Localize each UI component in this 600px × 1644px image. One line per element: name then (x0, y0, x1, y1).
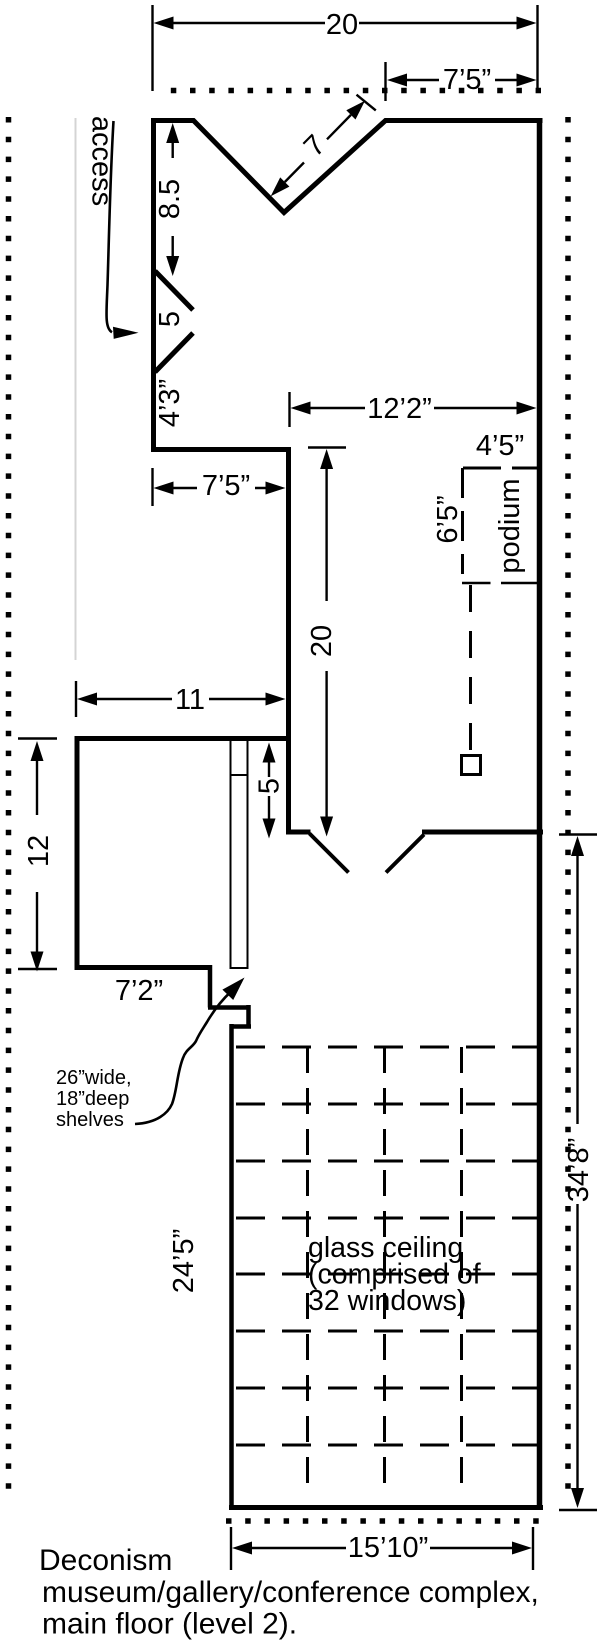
svg-text:5: 5 (254, 778, 286, 794)
svg-text:20: 20 (306, 625, 338, 657)
svg-text:8.5: 8.5 (154, 179, 186, 219)
svg-text:32 windows): 32 windows) (308, 1285, 466, 1317)
svg-text:12’2”: 12’2” (367, 393, 432, 425)
svg-text:20: 20 (326, 9, 358, 41)
svg-text:shelves: shelves (56, 1109, 124, 1131)
svg-text:4’5”: 4’5” (476, 430, 524, 462)
svg-text:18”deep: 18”deep (56, 1088, 129, 1110)
svg-text:7’5”: 7’5” (443, 64, 491, 96)
svg-text:Deconism: Deconism (39, 1544, 172, 1577)
svg-text:main floor (level 2).: main floor (level 2). (42, 1608, 297, 1641)
svg-text:12: 12 (23, 835, 55, 867)
svg-text:11: 11 (175, 684, 205, 716)
svg-text:podium: podium (494, 478, 526, 573)
svg-text:7: 7 (298, 129, 332, 163)
svg-text:6’5”: 6’5” (432, 495, 464, 543)
svg-text:26”wide,: 26”wide, (56, 1067, 132, 1089)
svg-text:15’10”: 15’10” (348, 1532, 429, 1564)
svg-text:museum/gallery/conference comp: museum/gallery/conference complex, (42, 1576, 539, 1609)
svg-text:4’3”: 4’3” (154, 379, 186, 427)
svg-text:34’8”: 34’8” (563, 1138, 595, 1203)
svg-text:7’5”: 7’5” (202, 470, 250, 502)
svg-text:24’5”: 24’5” (168, 1229, 200, 1294)
svg-text:5: 5 (154, 311, 186, 327)
svg-text:7’2”: 7’2” (115, 975, 163, 1007)
